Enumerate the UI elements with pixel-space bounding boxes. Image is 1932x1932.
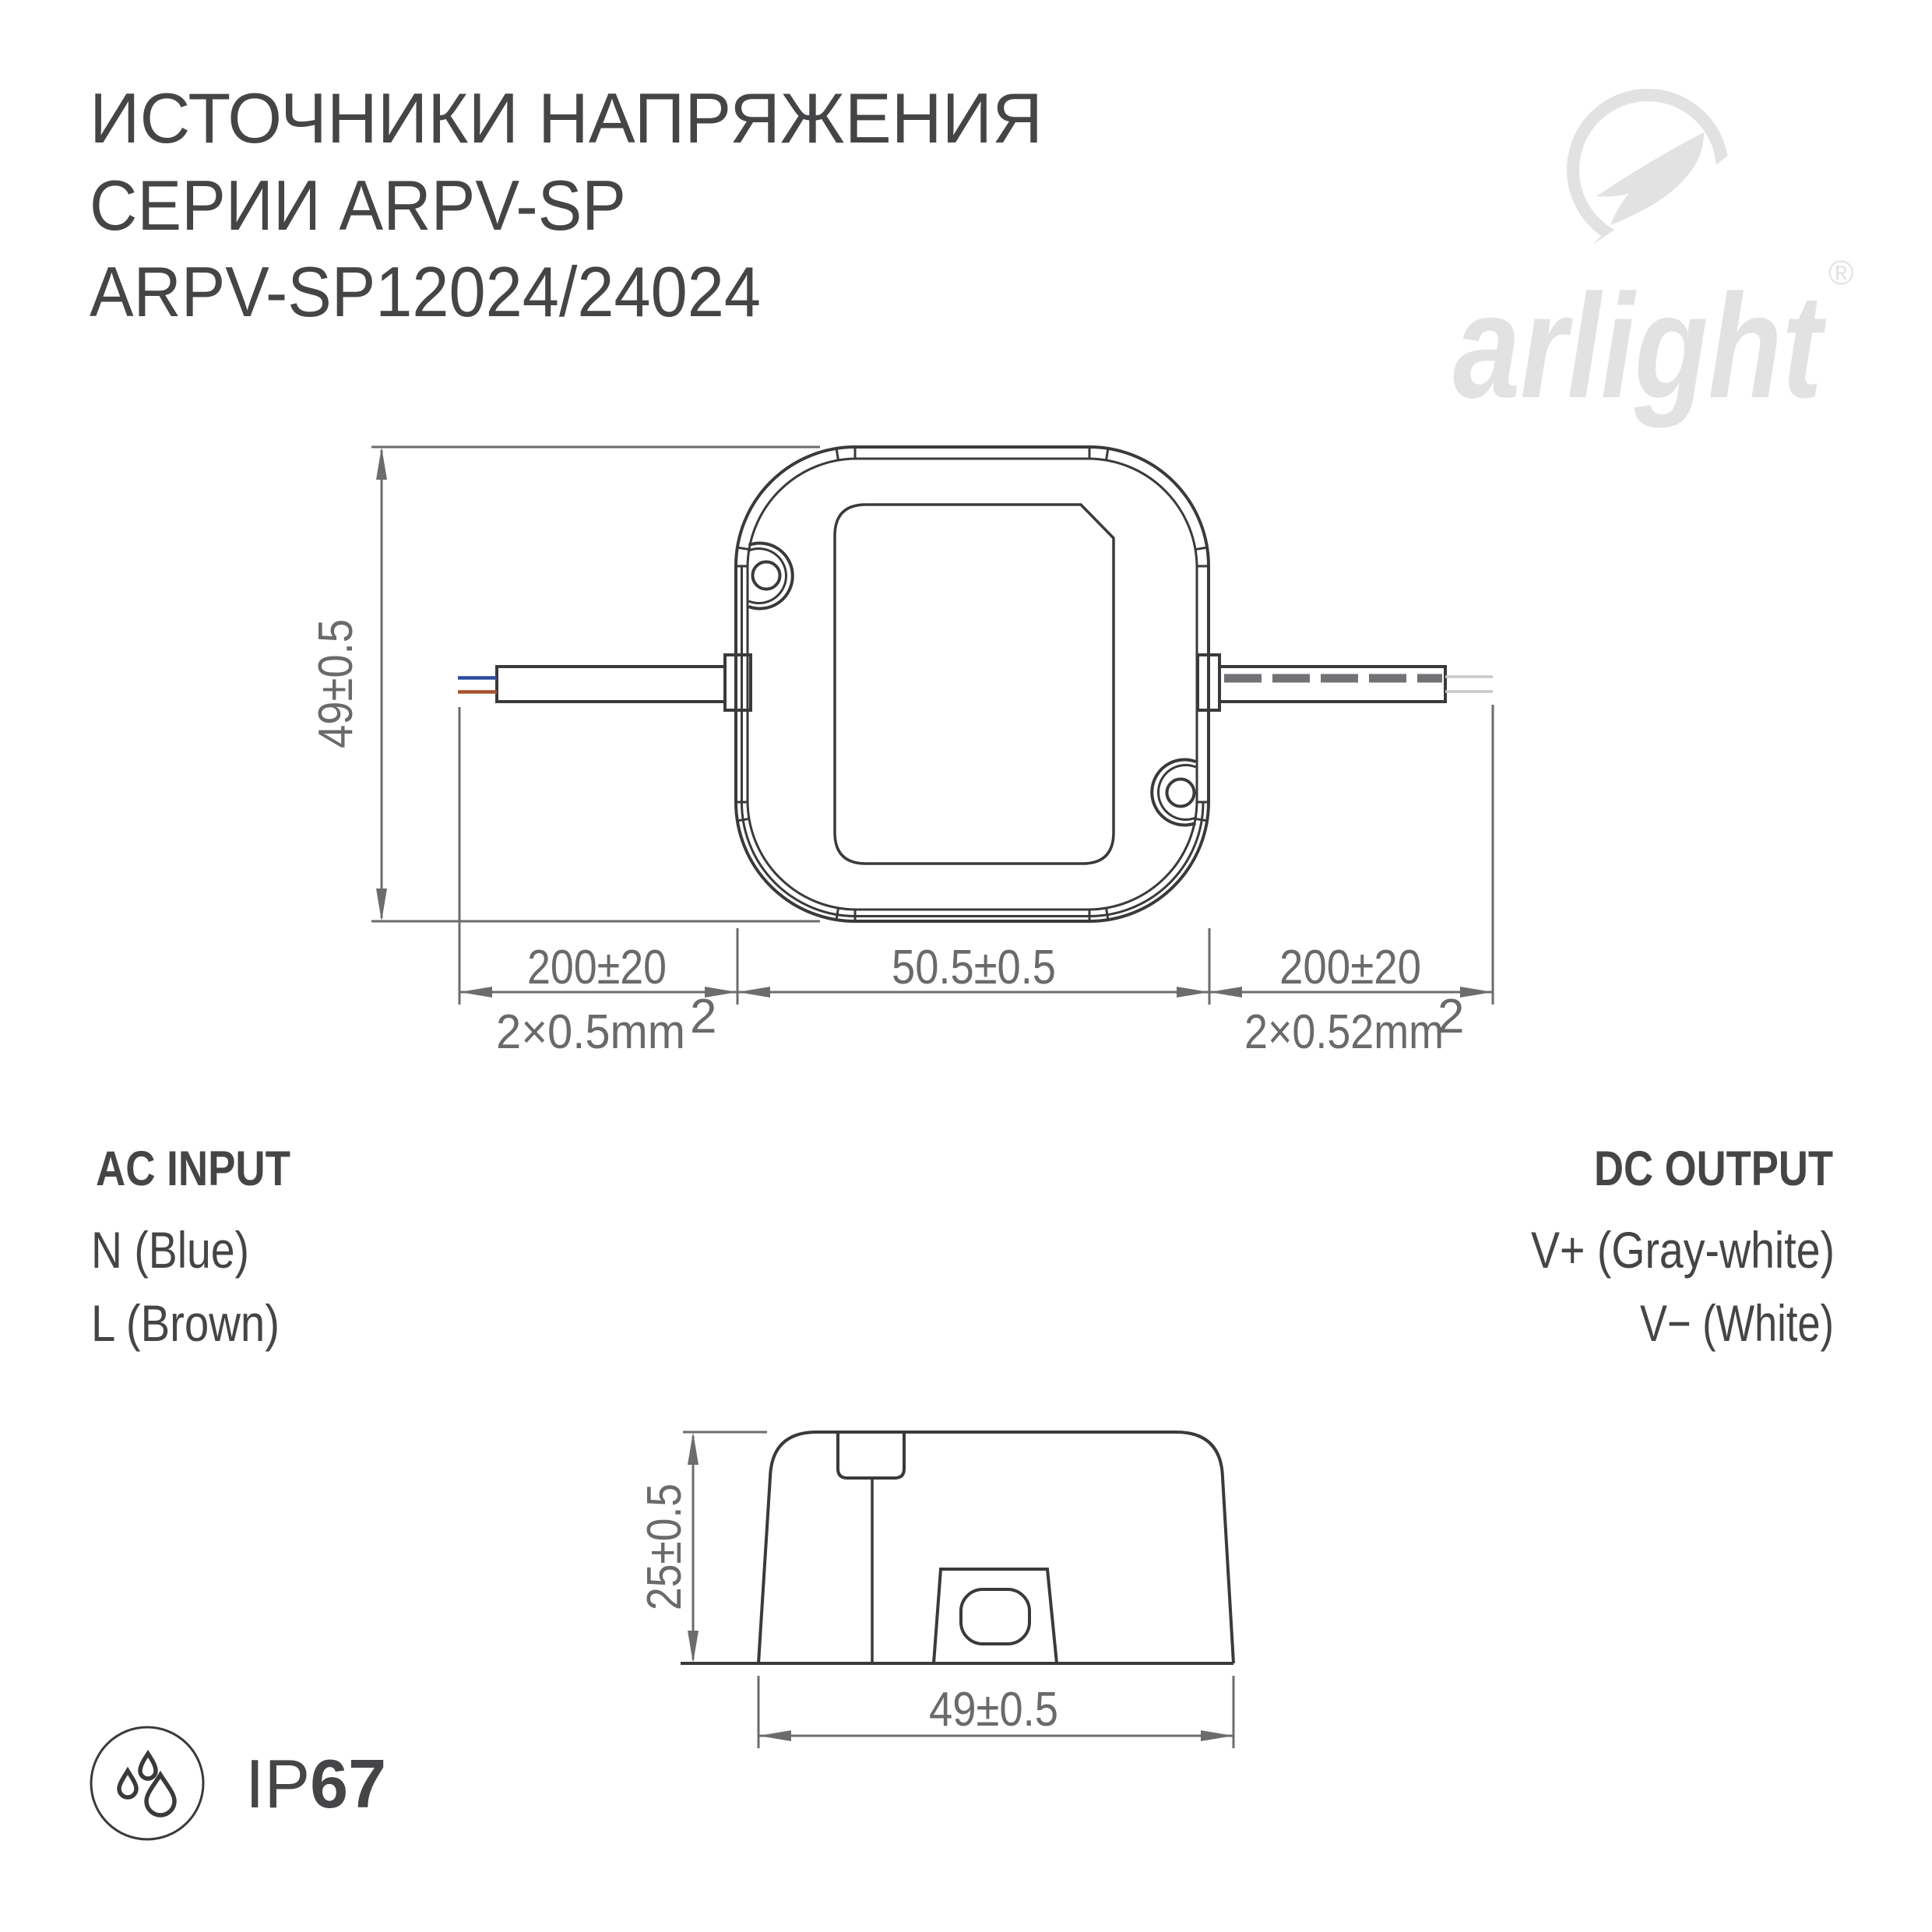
svg-text:ARPV-SP12024/24024: ARPV-SP12024/24024	[90, 253, 761, 332]
svg-text:2: 2	[690, 990, 716, 1043]
svg-text:®: ®	[1828, 254, 1853, 292]
svg-text:N (Blue): N (Blue)	[91, 1221, 249, 1279]
svg-text:2: 2	[1438, 990, 1464, 1043]
svg-text:V+ (Gray-white): V+ (Gray-white)	[1531, 1221, 1835, 1279]
svg-text:СЕРИИ ARPV-SP: СЕРИИ ARPV-SP	[90, 167, 626, 245]
svg-text:AC INPUT: AC INPUT	[96, 1142, 290, 1196]
svg-text:ИСТОЧНИКИ НАПРЯЖЕНИЯ: ИСТОЧНИКИ НАПРЯЖЕНИЯ	[90, 79, 1043, 158]
svg-text:2×0.52mm: 2×0.52mm	[1244, 1005, 1444, 1059]
svg-text:DC OUTPUT: DC OUTPUT	[1594, 1142, 1833, 1196]
svg-text:arlight: arlight	[1453, 264, 1826, 429]
svg-text:49±0.5: 49±0.5	[309, 619, 363, 748]
svg-text:200±20: 200±20	[527, 941, 667, 994]
svg-text:V− (White): V− (White)	[1640, 1294, 1834, 1352]
svg-text:IP67: IP67	[245, 1745, 386, 1822]
svg-text:L (Brown): L (Brown)	[91, 1294, 280, 1352]
svg-text:25±0.5: 25±0.5	[638, 1483, 692, 1610]
svg-text:2×0.5mm: 2×0.5mm	[496, 1005, 685, 1059]
svg-text:49±0.5: 49±0.5	[929, 1683, 1058, 1737]
svg-text:50.5±0.5: 50.5±0.5	[892, 941, 1056, 994]
svg-text:200±20: 200±20	[1279, 941, 1421, 994]
